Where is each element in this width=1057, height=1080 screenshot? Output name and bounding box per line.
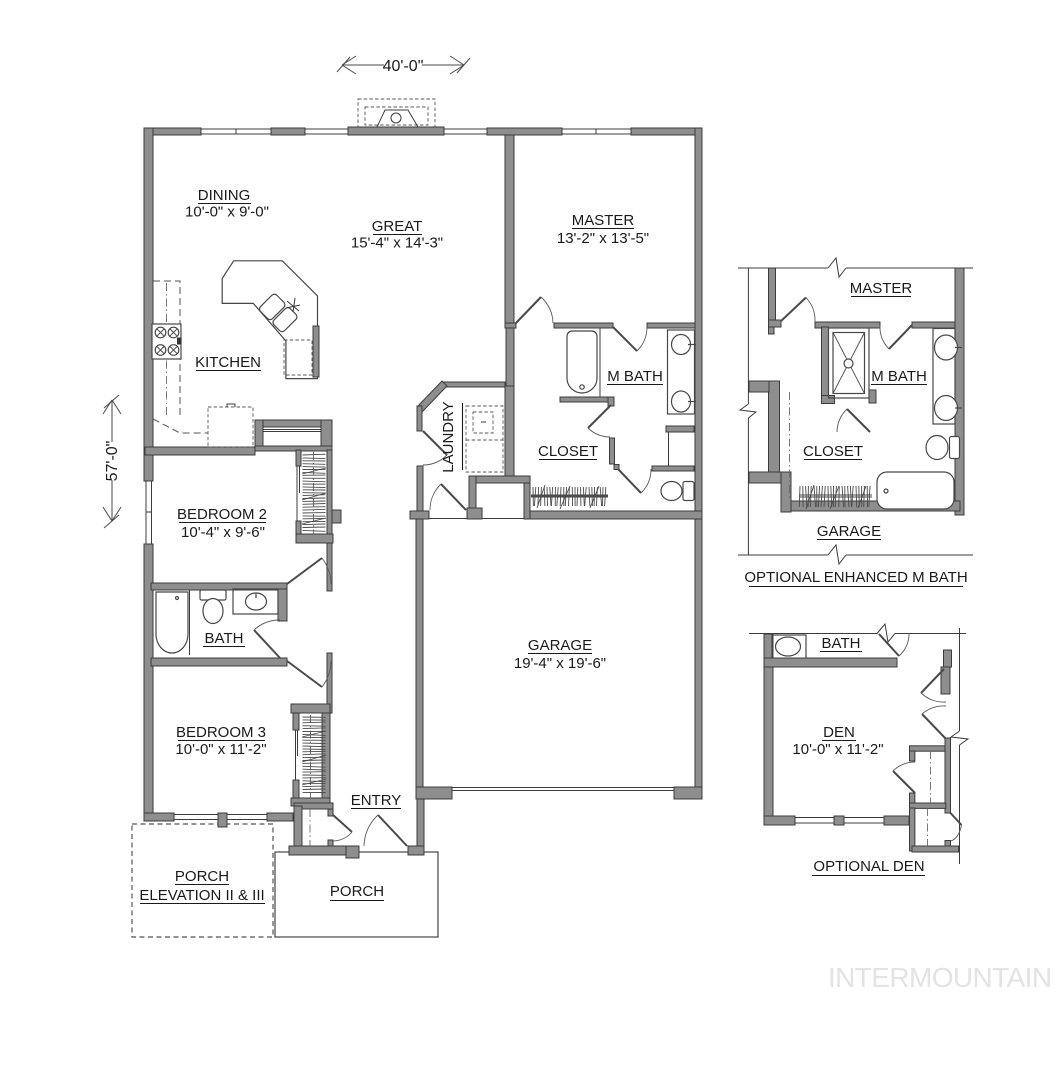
svg-text:ENTRY: ENTRY: [351, 792, 402, 809]
svg-text:MASTER: MASTER: [572, 212, 635, 229]
svg-text:ELEVATION II & III: ELEVATION II & III: [139, 887, 264, 904]
svg-text:DINING: DINING: [198, 187, 251, 204]
svg-text:OPTIONAL ENHANCED M BATH: OPTIONAL ENHANCED M BATH: [744, 569, 967, 586]
svg-text:BATH: BATH: [822, 635, 861, 652]
svg-text:KITCHEN: KITCHEN: [195, 354, 261, 371]
svg-text:GARAGE: GARAGE: [817, 523, 881, 540]
svg-text:13'-2" x 13'-5": 13'-2" x 13'-5": [557, 230, 649, 247]
svg-text:MASTER: MASTER: [850, 280, 913, 297]
svg-text:CLOSET: CLOSET: [538, 443, 598, 460]
svg-text:BATH: BATH: [205, 630, 244, 647]
svg-text:10'-0" x 11'-2": 10'-0" x 11'-2": [792, 741, 883, 758]
svg-text:M BATH: M BATH: [871, 368, 927, 385]
svg-text:BEDROOM 3: BEDROOM 3: [176, 724, 266, 741]
svg-text:GREAT: GREAT: [372, 218, 423, 235]
svg-text:OPTIONAL DEN: OPTIONAL DEN: [813, 858, 924, 875]
svg-text:40'-0": 40'-0": [383, 58, 424, 75]
svg-text:M BATH: M BATH: [607, 368, 663, 385]
svg-text:BEDROOM 2: BEDROOM 2: [177, 506, 267, 523]
svg-text:19'-4" x 19'-6": 19'-4" x 19'-6": [514, 655, 606, 672]
svg-text:PORCH: PORCH: [175, 868, 229, 885]
svg-text:INTERMOUNTAIN: INTERMOUNTAIN: [828, 962, 1051, 993]
svg-text:15'-4" x 14'-3": 15'-4" x 14'-3": [351, 235, 443, 252]
svg-text:DEN: DEN: [823, 724, 855, 741]
svg-text:GARAGE: GARAGE: [528, 637, 592, 654]
svg-text:10'-0" x 9'-0": 10'-0" x 9'-0": [185, 204, 269, 221]
svg-text:10'-4" x 9'-6": 10'-4" x 9'-6": [181, 524, 265, 541]
svg-text:10'-0" x 11'-2": 10'-0" x 11'-2": [175, 741, 266, 758]
svg-text:LAUNDRY: LAUNDRY: [440, 401, 457, 472]
svg-text:CLOSET: CLOSET: [803, 443, 863, 460]
svg-text:PORCH: PORCH: [330, 883, 384, 900]
svg-text:57'-0": 57'-0": [104, 441, 121, 482]
